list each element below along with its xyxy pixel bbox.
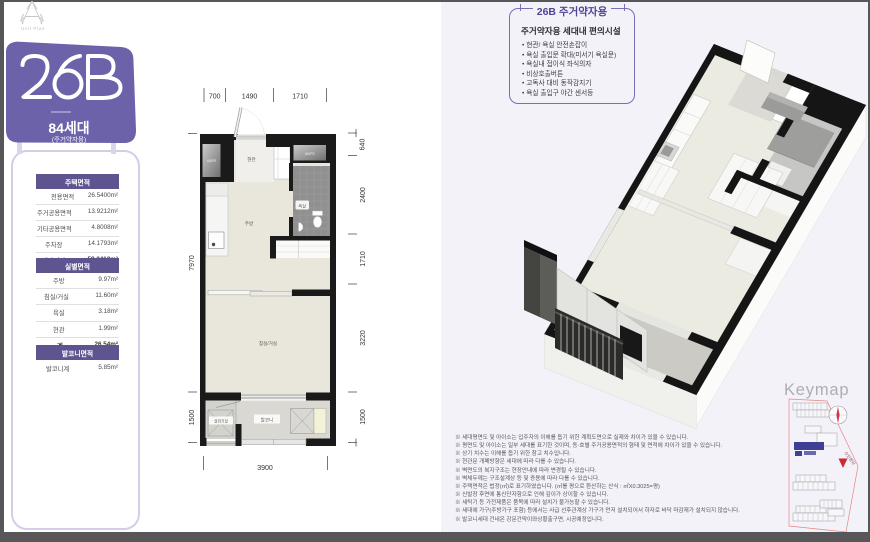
svg-text:1490: 1490: [242, 94, 258, 101]
svg-text:욕실: 욕실: [298, 202, 306, 209]
svg-text:침실/거실: 침실/거실: [259, 340, 277, 347]
svg-text:700: 700: [209, 94, 221, 101]
svg-text:1500: 1500: [360, 409, 367, 425]
svg-text:(주거약자용): (주거약자용): [52, 135, 86, 144]
svg-text:3900: 3900: [257, 465, 273, 472]
svg-text:발코니: 발코니: [261, 417, 274, 424]
svg-text:Unit Plan: Unit Plan: [21, 26, 45, 31]
svg-text:1500: 1500: [189, 410, 196, 426]
svg-text:주방: 주방: [245, 220, 254, 227]
svg-text:AD/PS: AD/PS: [305, 152, 315, 156]
svg-text:AD/PS: AD/PS: [207, 159, 217, 163]
svg-text:7970: 7970: [189, 255, 196, 271]
svg-text:실외기실: 실외기실: [214, 419, 228, 424]
svg-text:84세대: 84세대: [48, 120, 89, 136]
svg-text:3220: 3220: [360, 330, 367, 346]
svg-text:현관: 현관: [247, 156, 256, 162]
svg-text:1710: 1710: [292, 94, 308, 101]
svg-text:1710: 1710: [360, 251, 367, 267]
svg-text:2400: 2400: [360, 187, 367, 203]
svg-text:Keymap: Keymap: [784, 381, 849, 399]
svg-text:640: 640: [360, 139, 367, 151]
